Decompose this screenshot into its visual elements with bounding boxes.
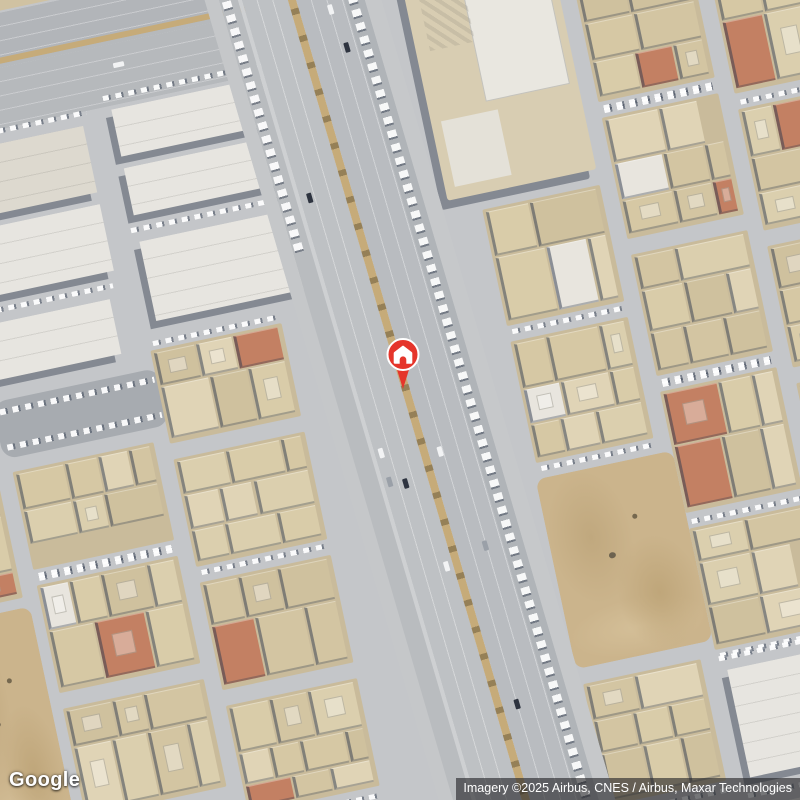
commercial-building [727,648,800,777]
city-block [226,678,380,800]
shrub [632,514,638,520]
roof-unit [780,24,800,55]
commercial-block [718,641,800,787]
city-block [738,85,800,231]
building [270,741,305,778]
building [674,40,709,80]
building [683,319,729,364]
roof-unit [639,202,662,220]
building [196,337,239,377]
building [634,249,679,290]
building [593,54,641,96]
home-marker[interactable] [383,337,423,391]
roof-unit [89,759,110,788]
city-block [200,555,354,690]
city-block [173,432,327,567]
building [664,145,711,189]
building [664,383,727,445]
mall-roof [441,109,512,187]
building [281,436,307,472]
building [751,544,799,595]
city-block [37,556,201,694]
building [308,682,362,735]
building [238,570,284,618]
commercial-block [0,118,123,308]
building [709,597,765,644]
building [633,706,672,744]
roof-unit [162,743,183,772]
satellite-map[interactable]: Google Imagery ©2025 Airbus, CNES / Airb… [0,0,800,800]
roof-unit [252,582,271,602]
roof-unit [84,505,99,521]
city-block [631,230,773,376]
city-block [510,317,653,463]
roof-unit [774,195,796,212]
roof-unit [536,393,554,410]
building [229,700,277,752]
building [642,283,690,332]
building [787,320,800,362]
roof-unit [686,193,705,210]
building [24,502,78,544]
imagery-attribution: Imagery ©2025 Airbus, CNES / Airbus, Max… [456,778,800,800]
building [771,240,800,289]
building [65,457,103,499]
building [486,203,537,256]
building [161,377,219,438]
roof-unit [112,629,137,656]
building [239,748,274,785]
building [609,366,640,405]
building [683,274,732,323]
rooftop-units [418,0,475,51]
roof-unit [283,705,302,726]
roof-unit [778,598,800,619]
shrub [608,552,616,559]
building [546,326,606,380]
city-block [63,679,227,800]
building [524,382,566,423]
building [98,451,134,493]
building [673,183,717,223]
building [0,573,17,605]
shrub [6,678,12,684]
mall-roof [460,0,570,101]
roof-unit [682,399,708,425]
roof-unit [324,696,347,718]
attribution-text: Imagery ©2025 Airbus, CNES / Airbus, Max… [463,781,792,795]
building [192,524,230,561]
roof-unit [262,376,282,400]
roof-unit [716,567,740,589]
city-block [571,0,714,102]
building [594,713,638,752]
building [203,578,245,625]
satellite-imagery [0,0,800,800]
building [101,566,154,618]
roof-unit [721,187,732,202]
building [112,695,149,736]
roof-unit [576,383,599,401]
building [94,612,155,678]
building [292,769,333,798]
building [277,505,321,544]
google-logo[interactable]: Google [9,769,80,792]
building [635,46,679,87]
building [745,508,800,550]
building [699,553,757,606]
city-block [602,93,744,239]
roof-unit [786,253,800,274]
roof-unit [124,706,140,724]
building [587,677,640,720]
city-block [708,0,800,94]
building [344,728,369,763]
roof-unit [753,119,769,141]
building [596,402,648,444]
building [659,101,705,151]
city-block [150,323,301,444]
building [531,420,565,458]
shrub [0,721,1,728]
city-block [660,367,800,513]
commercial-building [0,299,121,382]
city-block [482,185,624,326]
building [154,345,201,386]
city-block [13,442,175,570]
roof-unit [602,688,624,706]
building [560,412,600,451]
roof-unit [685,50,700,67]
building [73,495,109,533]
building [220,481,259,521]
building [184,488,225,529]
roof-unit [709,531,733,548]
commercial-block [0,292,131,392]
roof-unit [209,347,227,364]
roof-unit [610,333,624,353]
roof-unit [116,579,138,601]
roof-unit [0,581,1,595]
building [668,698,710,737]
roof-unit [81,714,102,733]
building [651,327,690,370]
building [270,692,315,743]
roof-unit [52,594,68,614]
roof-unit [168,355,188,372]
building [723,311,767,355]
home-pin-graphic [383,337,423,391]
